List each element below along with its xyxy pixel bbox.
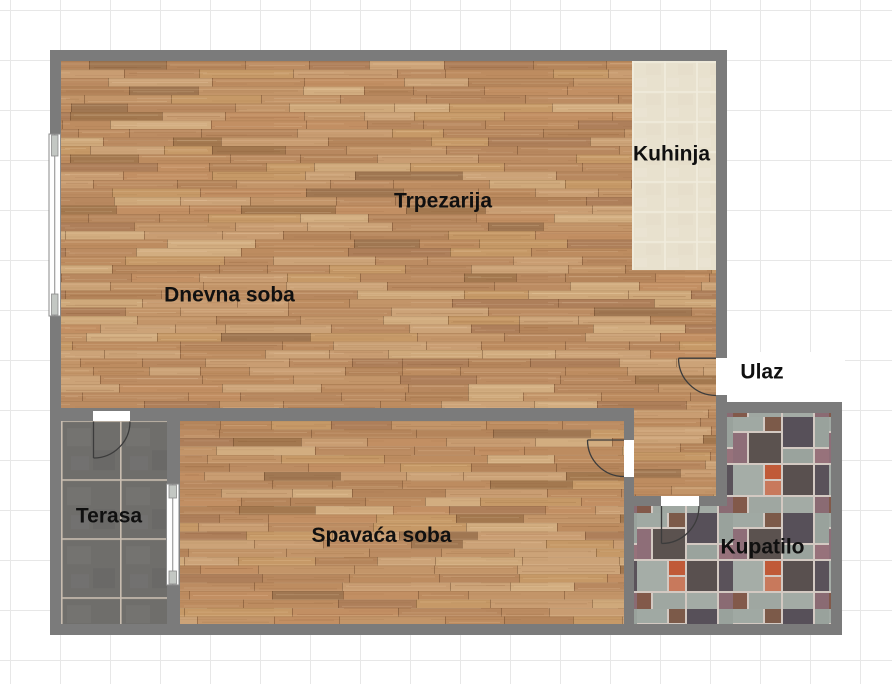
svg-text:Terasa: Terasa <box>76 505 142 528</box>
svg-text:Spavaća soba: Spavaća soba <box>311 524 451 547</box>
svg-text:Trpezarija: Trpezarija <box>394 190 492 213</box>
svg-text:Kupatilo: Kupatilo <box>721 536 805 559</box>
svg-text:Ulaz: Ulaz <box>740 361 783 384</box>
svg-text:Kuhinja: Kuhinja <box>633 143 710 166</box>
svg-text:Dnevna soba: Dnevna soba <box>164 284 295 307</box>
